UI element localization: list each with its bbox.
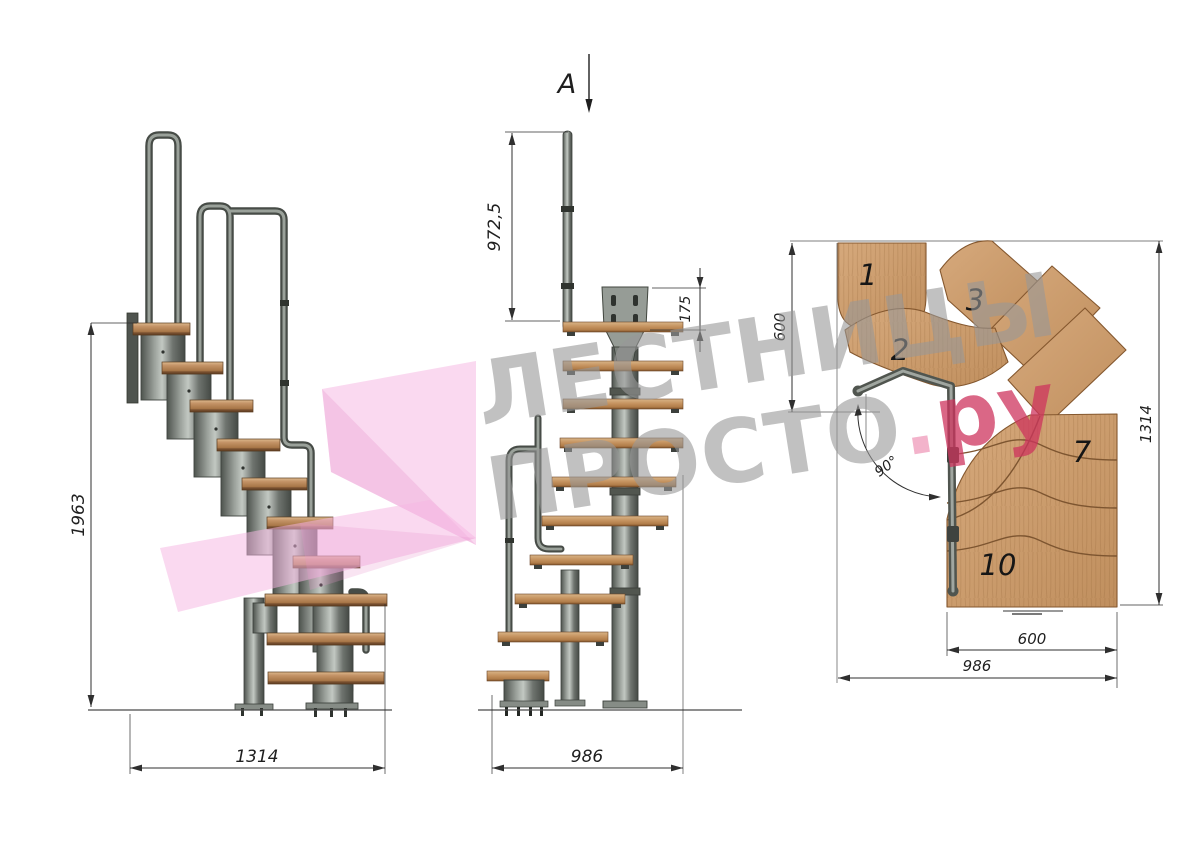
- dim-plan-total-width-label: 986: [963, 657, 992, 675]
- step-number-3: 3: [966, 283, 984, 317]
- front-treads: [487, 322, 683, 681]
- dim-plate-height-label: 175: [678, 296, 694, 323]
- section-arrow: [585, 54, 592, 113]
- step-number-2: 2: [891, 333, 909, 367]
- dim-plan-left: [789, 243, 796, 412]
- front-view-drawing: A: [440, 40, 770, 790]
- dim-rail-height: [505, 132, 568, 321]
- dim-front-width-label: 986: [571, 747, 604, 767]
- technical-drawing: 1963 1314 A: [0, 0, 1200, 849]
- dim-plan-height-label: 1314: [1137, 405, 1155, 443]
- handrail-post: [563, 131, 572, 330]
- section-label: A: [556, 69, 576, 100]
- plan-view-drawing: 90° 600 1314 600: [770, 225, 1200, 700]
- mounting-plate: [602, 287, 648, 347]
- plan-handrail: [853, 371, 960, 597]
- dim-plan-total-width: [838, 675, 1117, 682]
- dim-plan-tread-width-label: 600: [1018, 630, 1047, 648]
- dim-plan-left-label: 600: [771, 313, 789, 342]
- dim-side-length-label: 1314: [235, 747, 278, 767]
- dim-plan-tread-width: [947, 612, 1117, 688]
- watermark-ribbon: [140, 350, 480, 660]
- dim-rail-height-label: 972,5: [485, 203, 505, 252]
- dim-turn-angle-label: 90°: [872, 453, 901, 481]
- dim-side-height-label: 1963: [69, 493, 89, 536]
- step-number-10: 10: [980, 548, 1017, 582]
- step-number-1: 1: [859, 258, 877, 292]
- floor-bracket: [1003, 610, 1063, 615]
- dim-turn-angle: [855, 394, 941, 500]
- step-number-7: 7: [1073, 435, 1092, 469]
